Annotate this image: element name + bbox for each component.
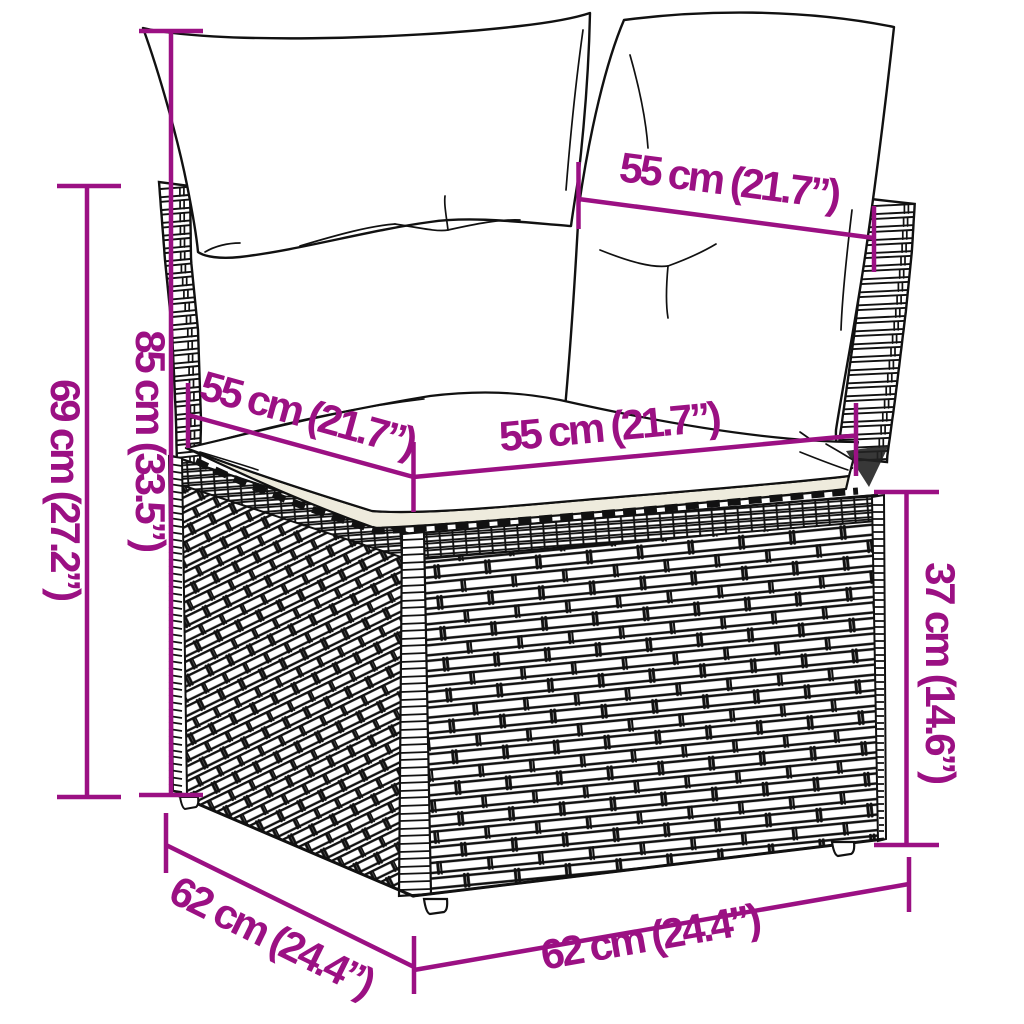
svg-text:69 cm (27.2”): 69 cm (27.2”) (42, 379, 89, 600)
svg-text:85 cm (33.5”): 85 cm (33.5”) (127, 330, 174, 551)
svg-text:37 cm (14.6”): 37 cm (14.6”) (917, 562, 964, 783)
